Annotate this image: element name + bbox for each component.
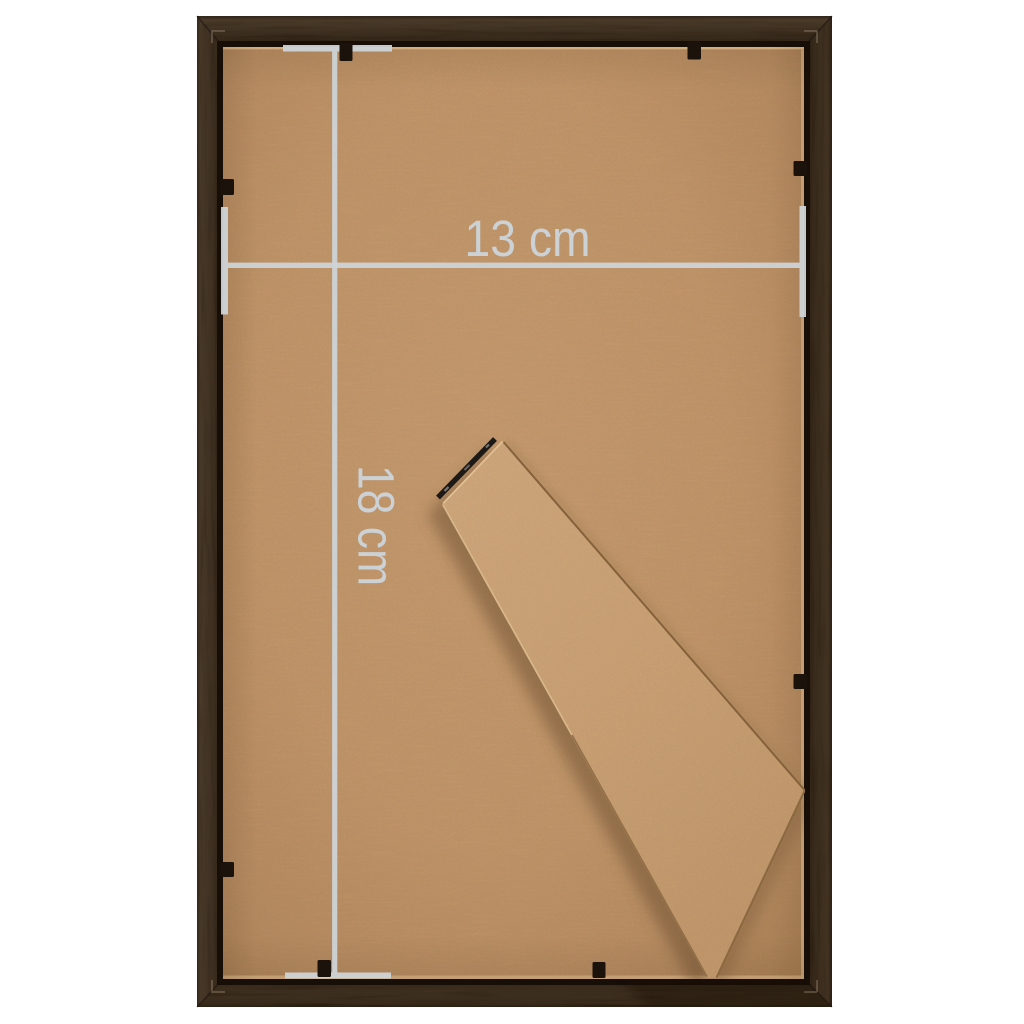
svg-text:18 cm: 18 cm (348, 465, 405, 586)
svg-text:13 cm: 13 cm (465, 210, 591, 267)
